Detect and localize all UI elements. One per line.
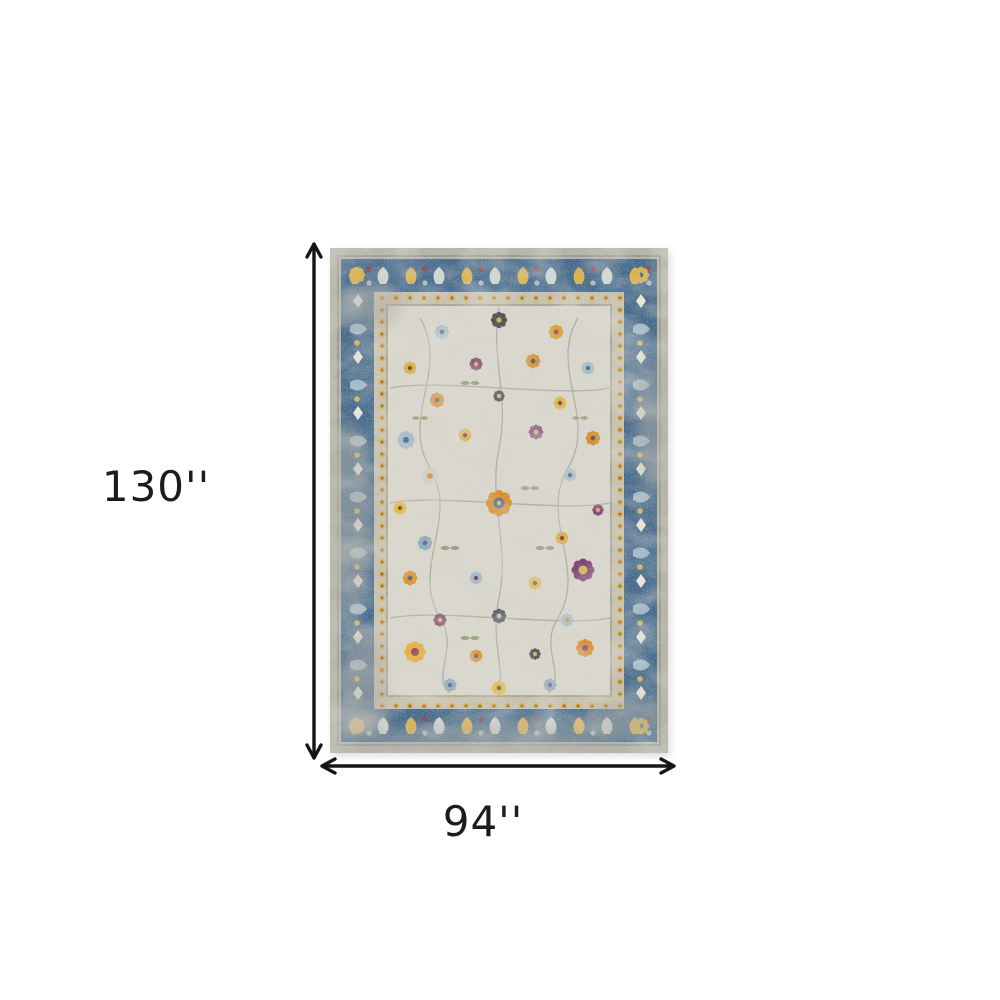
rug-image	[330, 248, 668, 753]
height-dimension-label: 130''	[98, 462, 214, 511]
rug-art	[330, 248, 668, 753]
width-dimension-label: 94''	[425, 797, 541, 846]
height-dimension-arrow	[300, 240, 328, 762]
width-dimension-arrow	[318, 752, 678, 780]
dimension-diagram: 130'' 94''	[0, 0, 1000, 1000]
